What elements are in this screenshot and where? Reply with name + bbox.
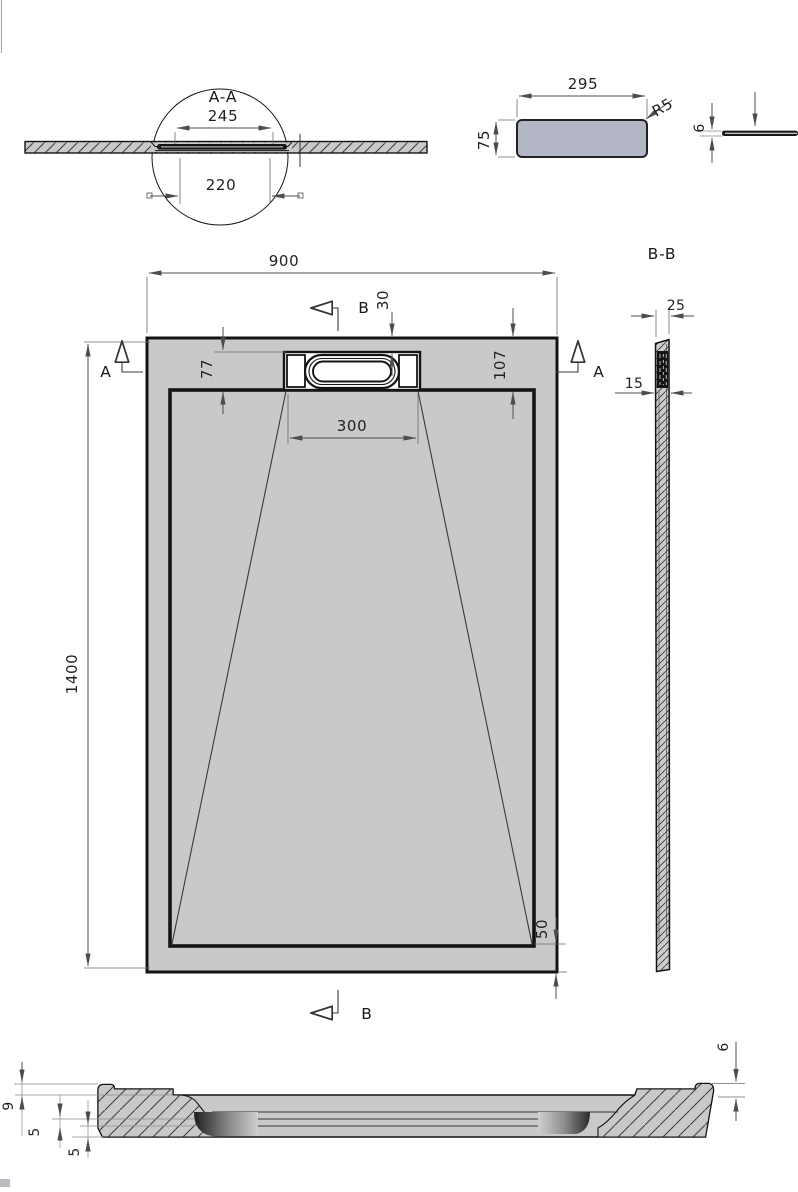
section-strip bbox=[656, 340, 670, 972]
section-arrow-b-top: B bbox=[312, 299, 370, 331]
dim-107-label: 107 bbox=[491, 350, 509, 380]
section-b-b-view: B-B 25 15 bbox=[615, 245, 694, 972]
plan-view: 900 1400 300 77 30 bbox=[63, 252, 605, 1023]
drain-stadium-inner bbox=[313, 362, 391, 382]
dim-9: 9 bbox=[1, 1062, 22, 1136]
dim-5-lower-label: 5 bbox=[67, 1147, 83, 1156]
section-a-label-left: A bbox=[100, 363, 111, 381]
dim-77-label: 77 bbox=[198, 359, 216, 379]
dim-25: 25 bbox=[631, 298, 694, 337]
section-b-label-bottom: B bbox=[361, 1005, 372, 1023]
dim-75: 75 bbox=[475, 120, 515, 157]
dim-50-label: 50 bbox=[533, 919, 551, 939]
detail-a-a-label: A-A bbox=[209, 88, 238, 106]
dim-15-label: 15 bbox=[625, 376, 644, 392]
dim-6-cover: 6 bbox=[692, 92, 755, 163]
profile-left-wedge bbox=[98, 1085, 216, 1138]
drain-cover-side-view: 6 bbox=[692, 92, 798, 163]
dim-220-label: 220 bbox=[206, 176, 236, 194]
shower-tray-drawing: A-A 245 220 295 bbox=[0, 0, 798, 1192]
drain-body-left bbox=[194, 1112, 258, 1136]
drain-cover-plan-view: 295 75 R5 bbox=[475, 75, 676, 157]
dim-6-cover-label: 6 bbox=[692, 123, 708, 132]
section-arrow-a-left: A bbox=[100, 342, 143, 381]
dim-245-label: 245 bbox=[208, 107, 238, 125]
dim-15: 15 bbox=[615, 376, 692, 393]
section-arrow-a-right: A bbox=[556, 342, 605, 381]
dim-75-label: 75 bbox=[475, 130, 493, 150]
dim-900-label: 900 bbox=[269, 252, 299, 270]
dim-5-upper-label: 5 bbox=[27, 1127, 43, 1136]
dim-30-label: 30 bbox=[374, 290, 392, 310]
dim-900: 900 bbox=[147, 252, 557, 335]
drain-body-right bbox=[538, 1112, 590, 1134]
dim-25-label: 25 bbox=[667, 298, 686, 314]
dim-9-label: 9 bbox=[1, 1101, 17, 1110]
section-b-label-top: B bbox=[358, 299, 369, 317]
dim-5-upper: 5 bbox=[27, 1095, 60, 1148]
recess-right-block bbox=[399, 355, 417, 387]
section-b-b-label: B-B bbox=[648, 245, 677, 263]
drain-cover-plate bbox=[517, 120, 647, 157]
section-a-label-right: A bbox=[593, 363, 604, 381]
dim-1400: 1400 bbox=[63, 342, 150, 968]
drain-recess bbox=[284, 352, 420, 390]
radius-callout: R5 bbox=[646, 94, 676, 120]
technical-drawing-canvas: A-A 245 220 295 bbox=[0, 0, 798, 1192]
detail-a-a-view: A-A 245 220 bbox=[25, 88, 427, 225]
dim-6-edge: 6 bbox=[712, 1042, 745, 1121]
screen-corner-artifact bbox=[0, 1179, 10, 1187]
dim-5-lower: 5 bbox=[67, 1100, 88, 1158]
cross-section-view: 9 5 5 6 bbox=[1, 1042, 745, 1158]
dim-6-edge-label: 6 bbox=[716, 1042, 732, 1051]
dim-295-label: 295 bbox=[568, 75, 598, 93]
dim-300-label: 300 bbox=[337, 417, 367, 435]
dim-245: 245 bbox=[175, 107, 273, 144]
dim-220: 220 bbox=[147, 158, 303, 204]
recess-left-block bbox=[287, 355, 305, 387]
dim-295: 295 bbox=[517, 75, 647, 117]
dim-1400-label: 1400 bbox=[63, 654, 81, 695]
radius-label: R5 bbox=[649, 94, 676, 120]
section-arrow-b-bottom: B bbox=[312, 990, 373, 1023]
